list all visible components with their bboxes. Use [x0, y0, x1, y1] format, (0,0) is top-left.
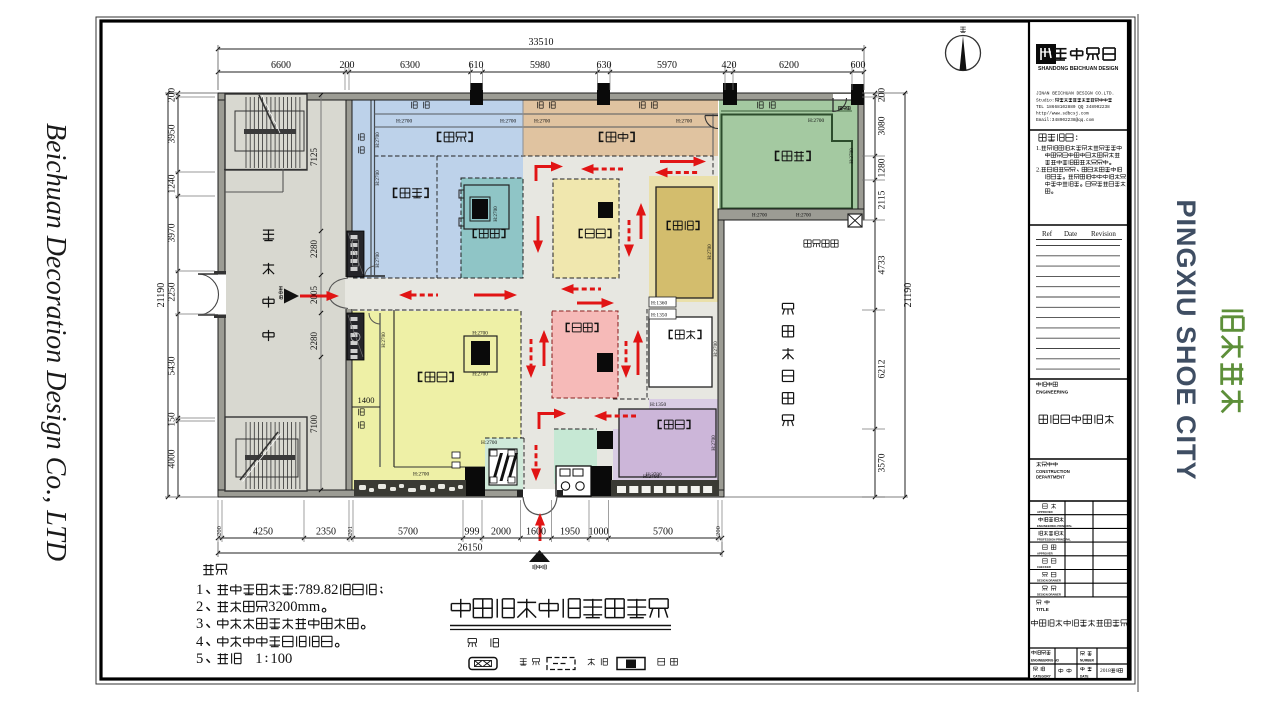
svg-text:SHANDONG BEICHUAN DESIGN: SHANDONG BEICHUAN DESIGN	[1038, 66, 1119, 72]
svg-text:3950: 3950	[168, 124, 178, 143]
svg-text:H:2700: H:2700	[472, 372, 488, 378]
svg-text:H:2700: H:2700	[375, 252, 381, 268]
svg-text:6600: 6600	[271, 60, 291, 71]
svg-text:1950: 1950	[560, 527, 580, 538]
svg-text:DATE: DATE	[1080, 675, 1088, 679]
svg-text:5700: 5700	[398, 527, 418, 538]
svg-text:H:2700: H:2700	[381, 332, 387, 348]
svg-text:6200: 6200	[779, 60, 799, 71]
svg-text:3970: 3970	[168, 223, 178, 242]
svg-text:200: 200	[216, 526, 223, 536]
svg-text:1240: 1240	[168, 174, 178, 193]
svg-text:3200mm: 3200mm	[268, 599, 321, 615]
svg-text:ENGINEERING PRINCIPAL: ENGINEERING PRINCIPAL	[1037, 524, 1073, 528]
svg-text:26150: 26150	[458, 543, 483, 554]
svg-text:APPROVER: APPROVER	[1037, 551, 1053, 555]
svg-text:4250: 4250	[253, 527, 273, 538]
svg-text:1280: 1280	[878, 158, 888, 177]
svg-text:http//www.sdbcsj.com: http//www.sdbcsj.com	[1036, 112, 1089, 117]
svg-text:H:2700: H:2700	[713, 341, 719, 357]
svg-text:5430: 5430	[168, 356, 178, 375]
svg-text:NUMBER: NUMBER	[1080, 659, 1095, 663]
svg-text:1400: 1400	[358, 395, 375, 405]
svg-text:H:2700: H:2700	[676, 119, 692, 125]
svg-text:600: 600	[851, 60, 866, 71]
svg-text:H:2700: H:2700	[796, 214, 812, 219]
svg-text:6212: 6212	[878, 359, 888, 378]
svg-text:H:2700: H:2700	[413, 472, 429, 478]
svg-text:APPROVED: APPROVED	[1037, 510, 1053, 514]
svg-text:DEPARTMENT: DEPARTMENT	[1036, 475, 1065, 480]
svg-text:610: 610	[469, 60, 484, 71]
svg-text:PINGXIU SHOE CITY: PINGXIU SHOE CITY	[1171, 199, 1201, 480]
svg-text:CHECKER: CHECKER	[1037, 565, 1051, 569]
svg-text:5980: 5980	[530, 60, 550, 71]
svg-text:5970: 5970	[657, 60, 677, 71]
svg-text:5700: 5700	[653, 527, 673, 538]
svg-text:H:2700: H:2700	[849, 148, 855, 164]
svg-text:420: 420	[722, 60, 737, 71]
svg-text:21190: 21190	[156, 283, 167, 308]
svg-text:TEL 18668102880 QQ 34890223: TEL 18668102880 QQ 348902238	[1036, 105, 1110, 110]
svg-text:1600: 1600	[526, 527, 546, 538]
svg-text:200: 200	[715, 526, 722, 536]
svg-text:6: 6	[1116, 668, 1119, 674]
svg-text:1000: 1000	[589, 527, 609, 538]
svg-text:H:2700: H:2700	[500, 119, 516, 125]
svg-text:2250: 2250	[168, 282, 178, 301]
svg-text:Date: Date	[1064, 230, 1077, 238]
svg-text:2018: 2018	[1100, 668, 1111, 674]
svg-text:2115: 2115	[878, 190, 888, 209]
svg-text:1.: 1.	[1036, 145, 1041, 152]
svg-text:200: 200	[168, 88, 178, 103]
svg-text:999: 999	[465, 527, 480, 538]
svg-text:3: 3	[196, 616, 203, 632]
svg-text:Email:348902238@qq.com: Email:348902238@qq.com	[1036, 118, 1094, 123]
svg-text:5: 5	[196, 651, 203, 667]
svg-text:TITLE: TITLE	[1036, 607, 1049, 612]
svg-text:ENGINEERING: ENGINEERING	[1036, 390, 1069, 395]
svg-text:4000: 4000	[168, 449, 178, 468]
svg-text:CONSTRUCTION: CONSTRUCTION	[1036, 469, 1070, 474]
svg-text:H:2700: H:2700	[711, 435, 717, 451]
svg-text:H:1350: H:1350	[650, 402, 666, 408]
svg-text:33510: 33510	[529, 37, 554, 48]
svg-text:4733: 4733	[878, 255, 888, 274]
svg-text:DESIGN DRAWER: DESIGN DRAWER	[1037, 592, 1061, 596]
svg-text:CATEGORY: CATEGORY	[1033, 675, 1052, 679]
svg-text:Ref: Ref	[1042, 230, 1053, 238]
svg-text:1: 1	[196, 582, 203, 598]
svg-text:3080: 3080	[878, 116, 888, 135]
svg-text:ENGINEERING NO: ENGINEERING NO	[1031, 659, 1060, 663]
svg-text:2280: 2280	[309, 240, 319, 259]
svg-text:H:2700: H:2700	[472, 331, 488, 337]
svg-text:6300: 6300	[400, 60, 420, 71]
svg-text:21190: 21190	[903, 283, 914, 308]
svg-text:H:1350: H:1350	[651, 313, 667, 319]
svg-text:200: 200	[340, 60, 355, 71]
svg-text:200: 200	[878, 88, 888, 103]
svg-text:2005: 2005	[309, 286, 319, 305]
svg-text:Studio:: Studio:	[1036, 99, 1054, 104]
svg-text:H:2700: H:2700	[534, 119, 550, 125]
svg-text:2280: 2280	[309, 332, 319, 351]
svg-text:Beichuan Decoration Design: Beichuan Decoration Design Co., LTD	[40, 123, 71, 561]
svg-text:H:2700: H:2700	[375, 170, 381, 186]
svg-text:H:2700: H:2700	[481, 440, 497, 446]
svg-text:H:1360: H:1360	[651, 301, 667, 307]
svg-text:JINAN BEICHUAN DESIGN CO.LTD: JINAN BEICHUAN DESIGN CO.LTD.	[1036, 91, 1114, 97]
svg-text:H:2700: H:2700	[707, 244, 713, 260]
svg-text:PROFESSION PRINCIPAL: PROFESSION PRINCIPAL	[1037, 538, 1071, 542]
svg-text:2350: 2350	[316, 527, 336, 538]
svg-text:150: 150	[168, 412, 178, 427]
svg-text:DESIGN DRAWER: DESIGN DRAWER	[1037, 579, 1061, 583]
svg-text:1: 1	[255, 651, 262, 667]
svg-text:630: 630	[597, 60, 612, 71]
svg-text:2000: 2000	[491, 527, 511, 538]
svg-text:2.: 2.	[1036, 167, 1041, 174]
svg-text:H:2700: H:2700	[493, 206, 499, 222]
svg-text:201: 201	[347, 526, 354, 536]
svg-text:H:2700: H:2700	[396, 119, 412, 125]
svg-text:Revision: Revision	[1091, 230, 1116, 238]
svg-text:H:2700: H:2700	[375, 132, 381, 148]
svg-text:H:2700: H:2700	[808, 118, 824, 124]
svg-text:7100: 7100	[309, 415, 319, 434]
svg-text:100: 100	[270, 651, 292, 667]
svg-text:7125: 7125	[309, 148, 319, 167]
svg-text:4: 4	[196, 634, 204, 650]
svg-text:H:2700: H:2700	[752, 214, 768, 219]
svg-text::789.82: :789.82	[294, 582, 338, 598]
svg-text:3570: 3570	[878, 453, 888, 472]
svg-text:2: 2	[196, 599, 203, 615]
svg-text:H:2700: H:2700	[646, 472, 662, 478]
